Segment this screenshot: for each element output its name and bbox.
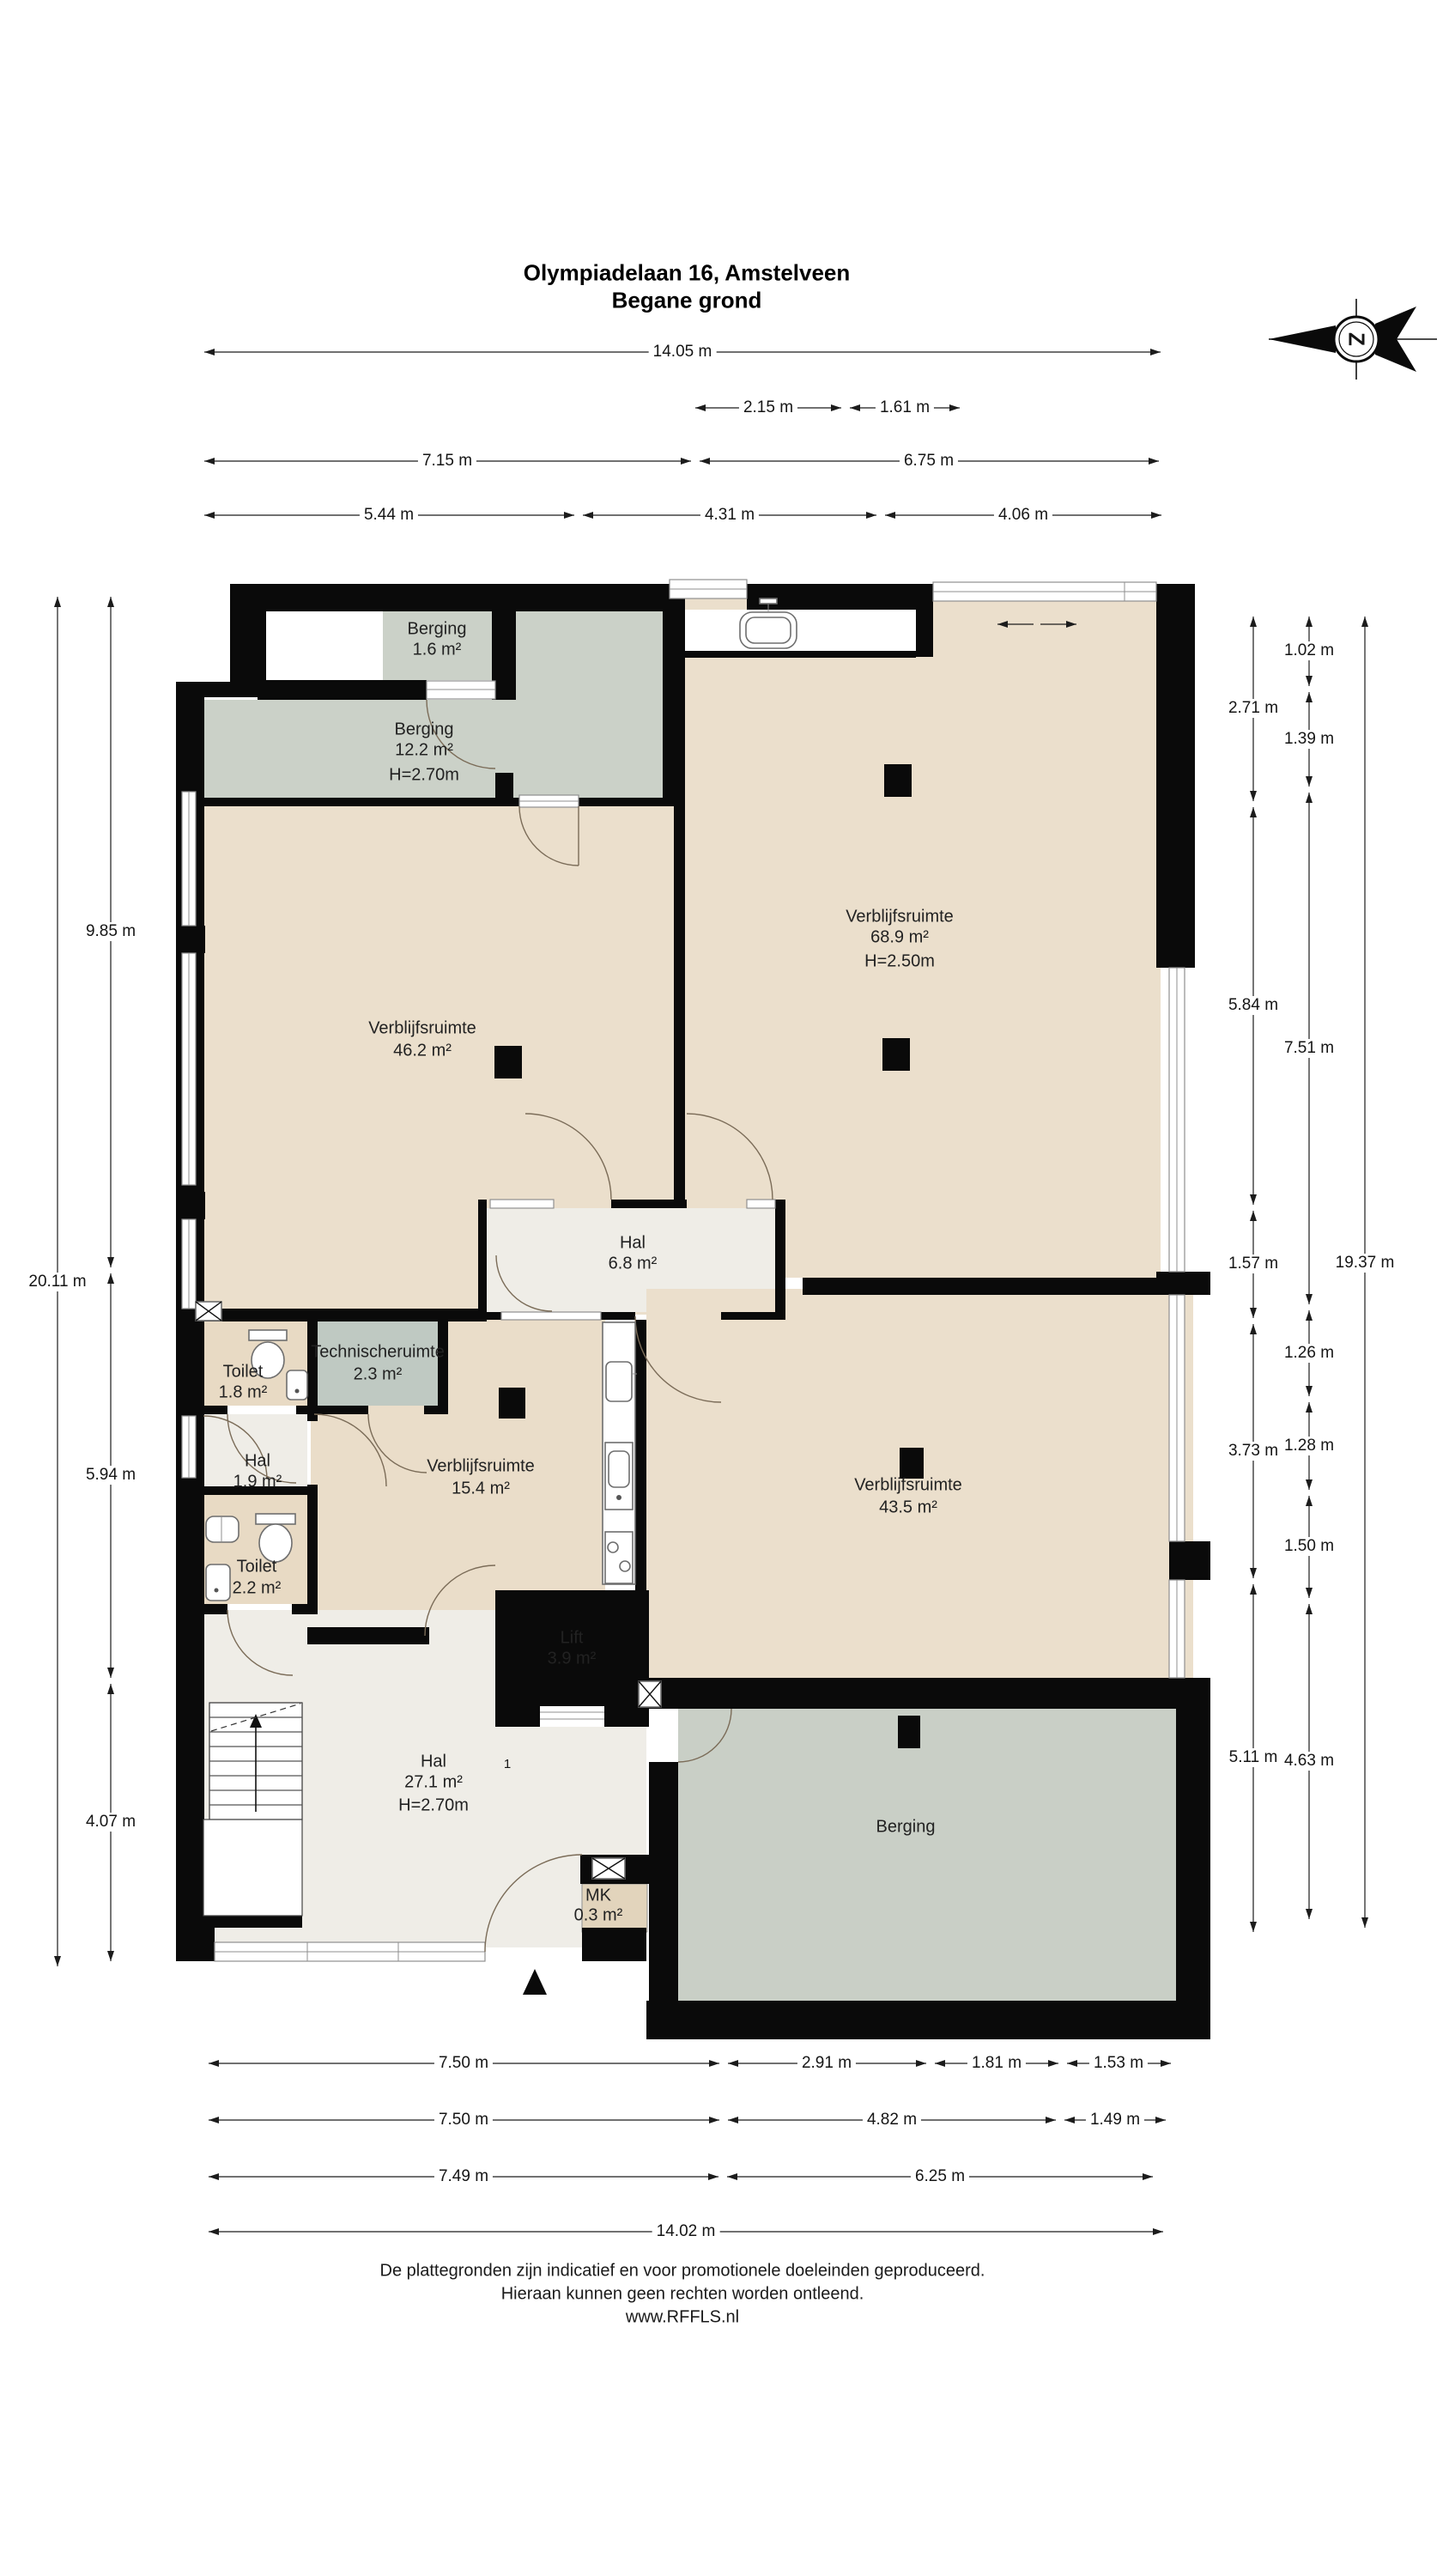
dim-label: 4.06 m bbox=[994, 506, 1052, 525]
dim-label: 1.53 m bbox=[1089, 2054, 1148, 2073]
dim-label: 5.94 m bbox=[82, 1466, 140, 1485]
dim-label: 1.50 m bbox=[1280, 1537, 1338, 1556]
sink-icon bbox=[287, 1370, 307, 1400]
dim-label: 7.50 m bbox=[434, 2111, 493, 2129]
room-label-verblijfsruimte-46-area: 46.2 m² bbox=[393, 1042, 452, 1060]
dim-label: 7.51 m bbox=[1280, 1039, 1338, 1058]
room-label-hal-68-name: Hal bbox=[620, 1235, 646, 1253]
room-label-technische-ruimte-area: 2.3 m² bbox=[354, 1366, 403, 1384]
footer-website: www.RFFLS.nl bbox=[626, 2309, 739, 2327]
dim-label: 4.31 m bbox=[700, 506, 759, 525]
kitchen-counter bbox=[603, 1322, 637, 1584]
dim-label: 3.73 m bbox=[1224, 1442, 1282, 1461]
footer-disclaimer-line2: Hieraan kunnen geen rechten worden ontle… bbox=[501, 2286, 864, 2304]
dim-label: 1.49 m bbox=[1086, 2111, 1144, 2129]
compass-letter: Z bbox=[1344, 332, 1367, 346]
room-label-hal-19-name: Hal bbox=[245, 1453, 270, 1471]
room-label-verblijfsruimte-15-name: Verblijfsruimte bbox=[427, 1458, 535, 1476]
entrance-arrow-icon bbox=[523, 1969, 547, 1995]
vent-icon bbox=[196, 1302, 221, 1321]
dim-label: 1.28 m bbox=[1280, 1437, 1338, 1455]
footer-disclaimer-line1: De plattegronden zijn indicatief en voor… bbox=[380, 2263, 985, 2281]
room-label-hal-27-height: H=2.70m bbox=[398, 1797, 469, 1815]
dim-label: 2.15 m bbox=[739, 398, 797, 417]
lift-door-annotation: 1 bbox=[504, 1758, 511, 1771]
room-label-toilet-18-name: Toilet bbox=[223, 1364, 264, 1382]
room-label-toilet-18-area: 1.8 m² bbox=[219, 1384, 268, 1402]
dim-label: 7.49 m bbox=[434, 2167, 493, 2186]
dim-label: 5.84 m bbox=[1224, 996, 1282, 1015]
room-label-hal-27-area: 27.1 m² bbox=[404, 1774, 463, 1792]
room-label-berging-buiten-name: Berging bbox=[876, 1819, 936, 1837]
room-label-verblijfsruimte-68-area: 68.9 m² bbox=[870, 929, 929, 947]
room-label-verblijfsruimte-43-area: 43.5 m² bbox=[879, 1499, 937, 1517]
room-label-toilet-22-name: Toilet bbox=[237, 1558, 277, 1577]
dim-label: 6.25 m bbox=[911, 2167, 969, 2186]
dim-label: 19.37 m bbox=[1331, 1254, 1399, 1273]
room-label-verblijfsruimte-43-name: Verblijfsruimte bbox=[854, 1477, 962, 1495]
dim-label: 20.11 m bbox=[24, 1273, 90, 1291]
room-label-lift-area: 3.9 m² bbox=[548, 1650, 597, 1668]
dim-label: 2.71 m bbox=[1224, 699, 1282, 718]
page-title-line1: Olympiadelaan 16, Amstelveen bbox=[524, 261, 851, 284]
room-label-hal-68-area: 6.8 m² bbox=[609, 1255, 658, 1273]
room-label-verblijfsruimte-46-name: Verblijfsruimte bbox=[368, 1020, 476, 1038]
dim-label: 7.15 m bbox=[418, 452, 476, 471]
room-label-meterkast-name: MK bbox=[585, 1887, 611, 1905]
dim-label: 9.85 m bbox=[82, 922, 140, 941]
room-label-lift-name: Lift bbox=[561, 1630, 584, 1648]
dim-label: 6.75 m bbox=[900, 452, 958, 471]
room-label-verblijfsruimte-68-height: H=2.50m bbox=[864, 953, 935, 971]
dim-label: 1.26 m bbox=[1280, 1344, 1338, 1363]
boiler-icon bbox=[206, 1516, 239, 1542]
page-title-line2: Begane grond bbox=[612, 289, 762, 312]
room-label-berging-groot-height: H=2.70m bbox=[389, 767, 459, 785]
dim-label: 1.81 m bbox=[967, 2054, 1026, 2073]
staircase bbox=[203, 1703, 302, 1916]
dim-label: 1.39 m bbox=[1280, 730, 1338, 749]
dim-label: 2.91 m bbox=[797, 2054, 856, 2073]
room-label-meterkast-area: 0.3 m² bbox=[574, 1907, 623, 1925]
room-label-berging-groot-area: 12.2 m² bbox=[395, 742, 453, 760]
room-label-berging-klein-name: Berging bbox=[408, 621, 467, 639]
room-label-technische-ruimte-name: Technischeruimte bbox=[311, 1344, 445, 1362]
dim-label: 4.82 m bbox=[863, 2111, 921, 2129]
dim-label: 7.50 m bbox=[434, 2054, 493, 2073]
room-label-hal-19-area: 1.9 m² bbox=[233, 1473, 282, 1492]
room-fills bbox=[203, 597, 1193, 2001]
room-label-berging-groot-name: Berging bbox=[395, 721, 454, 739]
room-label-berging-klein-area: 1.6 m² bbox=[413, 641, 462, 659]
dim-label: 1.61 m bbox=[876, 398, 934, 417]
room-label-verblijfsruimte-15-area: 15.4 m² bbox=[452, 1480, 510, 1498]
room-label-hal-27-name: Hal bbox=[421, 1753, 446, 1771]
dim-label: 14.05 m bbox=[649, 343, 717, 361]
vent-icon bbox=[592, 1858, 625, 1879]
floorplan-page: Olympiadelaan 16, Amstelveen Begane gron… bbox=[0, 0, 1449, 2576]
dim-label: 1.02 m bbox=[1280, 641, 1338, 660]
room-label-verblijfsruimte-68-name: Verblijfsruimte bbox=[846, 908, 954, 927]
sink-icon bbox=[206, 1564, 230, 1601]
dim-label: 5.44 m bbox=[360, 506, 418, 525]
room-label-toilet-22-area: 2.2 m² bbox=[233, 1580, 282, 1598]
dim-label: 5.11 m bbox=[1225, 1748, 1282, 1767]
dim-label: 1.57 m bbox=[1224, 1255, 1282, 1273]
vent-icon bbox=[639, 1681, 661, 1707]
dim-label: 4.07 m bbox=[82, 1813, 140, 1832]
dim-label: 4.63 m bbox=[1280, 1752, 1338, 1771]
dim-label: 14.02 m bbox=[652, 2222, 720, 2241]
floorplan-drawing bbox=[0, 0, 1449, 2576]
